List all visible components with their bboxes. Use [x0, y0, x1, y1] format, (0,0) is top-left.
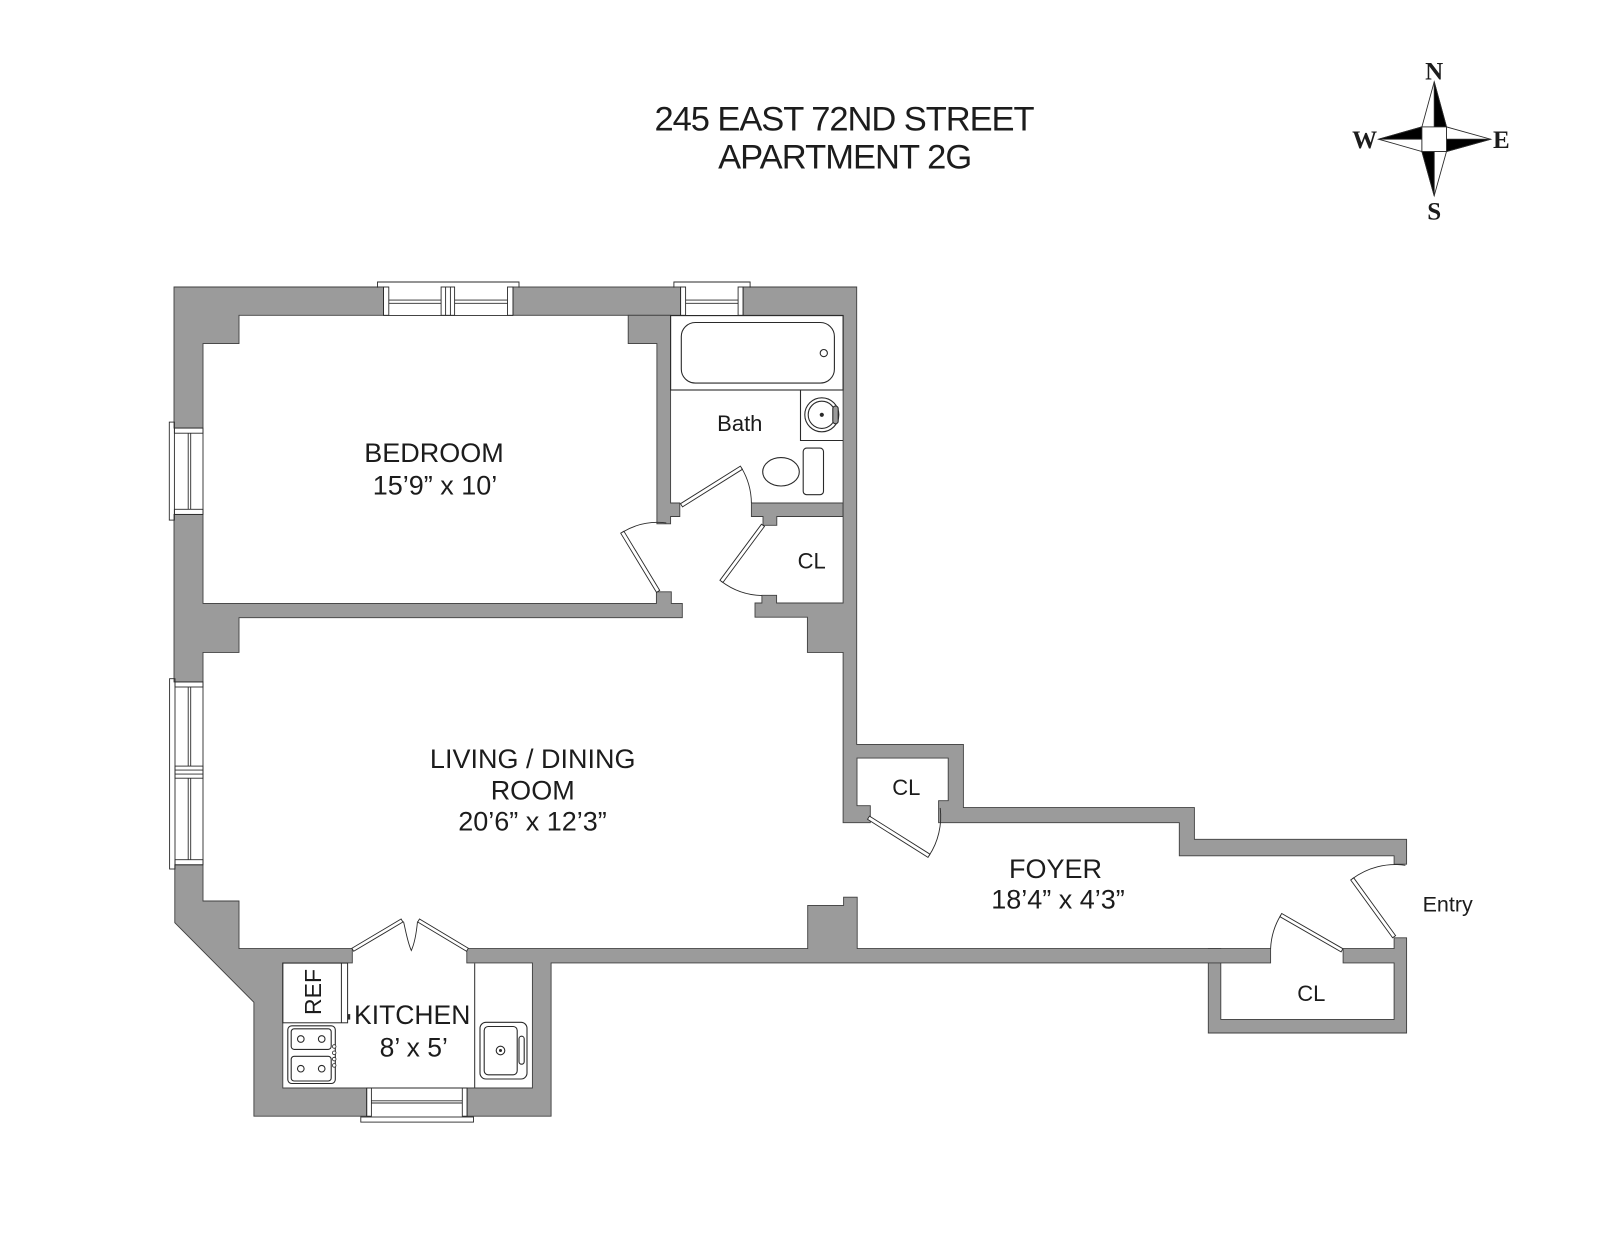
svg-text:15’9” x 10’: 15’9” x 10’: [373, 470, 498, 500]
svg-text:KITCHEN: KITCHEN: [354, 1000, 470, 1030]
svg-text:Entry: Entry: [1423, 893, 1473, 917]
svg-text:BEDROOM: BEDROOM: [364, 438, 504, 468]
svg-text:18’4” x 4’3”: 18’4” x 4’3”: [991, 885, 1125, 915]
svg-text:S: S: [1427, 198, 1441, 225]
svg-text:CL: CL: [798, 548, 826, 573]
svg-text:APARTMENT 2G: APARTMENT 2G: [718, 139, 971, 177]
svg-text:8’ x 5’: 8’ x 5’: [380, 1033, 448, 1063]
svg-text:CL: CL: [892, 775, 920, 800]
svg-text:N: N: [1425, 58, 1443, 85]
svg-text:REF: REF: [300, 969, 326, 1015]
svg-text:FOYER: FOYER: [1009, 854, 1102, 884]
svg-text:20’6” x 12’3”: 20’6” x 12’3”: [458, 807, 607, 837]
svg-text:CL: CL: [1297, 981, 1325, 1006]
svg-text:ROOM: ROOM: [491, 775, 575, 805]
svg-text:LIVING / DINING: LIVING / DINING: [430, 744, 636, 774]
svg-text:245 EAST 72ND STREET: 245 EAST 72ND STREET: [654, 101, 1034, 139]
svg-text:W: W: [1352, 127, 1377, 154]
svg-text:E: E: [1493, 127, 1510, 154]
svg-text:Bath: Bath: [717, 411, 762, 436]
